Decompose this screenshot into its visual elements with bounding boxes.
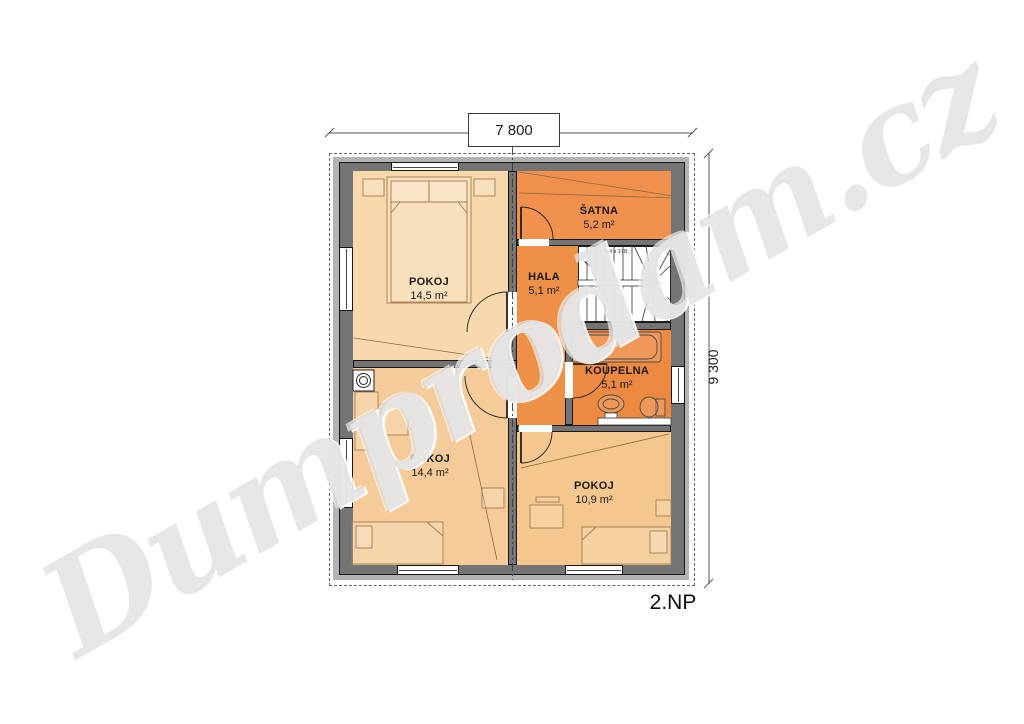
door-opening-satna [519,239,549,246]
door-opening-pokoj-bottom-left [508,376,517,418]
door-opening-pokoj-bottom-right [519,425,552,432]
window-bottom-wall-right [565,565,623,575]
window-bottom-wall-left [397,565,459,575]
window-top-wall [391,162,459,171]
room-area: 10,9 m² [548,493,640,507]
label-koupelna: KOUPELNA 5,1 m² [571,364,663,392]
floor-title: 2.NP [642,591,704,615]
room-name: POKOJ [384,452,476,466]
room-area: 5,2 m² [553,218,645,232]
room-name: HALA [500,270,588,284]
label-satna: ŠATNA 5,2 m² [553,204,645,232]
partition-wall-vertical-center [508,171,517,565]
label-pokoj-top-left: POKOJ 14,5 m² [383,275,475,303]
label-pokoj-bottom-left: POKOJ 14,4 m² [384,452,476,480]
partition-wall-stairs-bottom [565,322,671,330]
room-area: 5,1 m² [571,378,663,392]
floor-plan-canvas: POKOJ 14,5 m² ŠATNA 5,2 m² HALA 5,1 m² K… [0,0,1024,724]
room-area: 14,5 m² [383,289,475,303]
door-opening-pokoj-top-left [508,292,517,332]
window-right-wall-koupelna [671,366,685,404]
dimension-height-label: 9 300 [696,342,730,392]
room-pokoj-top-left [353,171,508,360]
room-name: POKOJ [548,479,640,493]
window-left-wall-upper [339,247,353,311]
dimension-width-label: 7 800 [468,113,560,147]
staircase-area [578,246,671,322]
label-hala: HALA 5,1 m² [500,270,588,298]
room-area: 5,1 m² [500,284,588,298]
partition-wall-between-left-rooms [353,360,517,368]
room-area: 14,4 m² [384,466,476,480]
label-pokoj-bottom-right: POKOJ 10,9 m² [548,479,640,507]
room-name: POKOJ [383,275,475,289]
room-name: KOUPELNA [571,364,663,378]
window-left-wall-lower [339,438,353,508]
room-name: ŠATNA [553,204,645,218]
stairs-dimension-note: 17 x 264 x 178 [579,249,639,255]
